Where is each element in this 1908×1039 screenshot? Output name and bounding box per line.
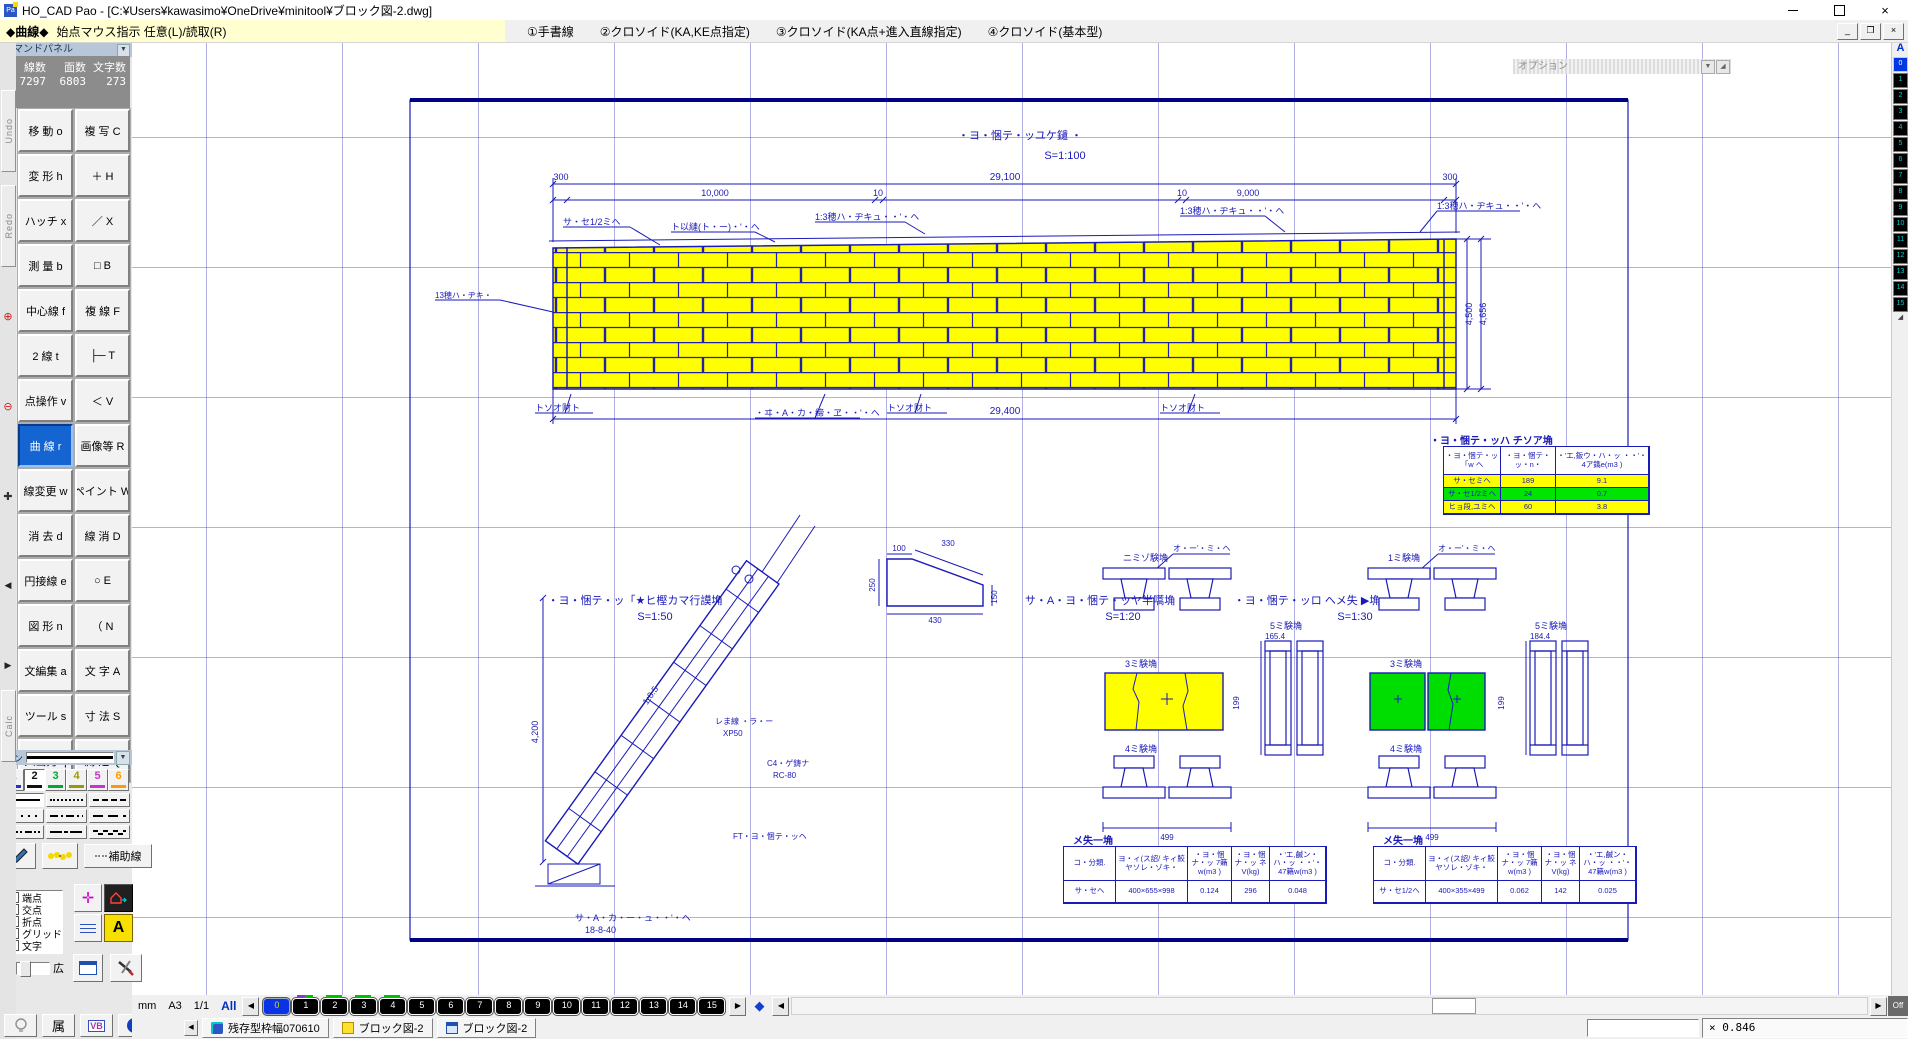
wall-scale: S=1:100 — [1044, 150, 1085, 162]
linestyle-button[interactable] — [46, 793, 87, 807]
layer-thumbnails: 0123456789101112131415 — [1892, 57, 1908, 312]
dim-seg1: 10,000 — [701, 188, 729, 198]
pen-button[interactable]: 6 — [108, 769, 129, 791]
command-button[interactable]: ○ E — [75, 559, 130, 602]
highlight-pen-button[interactable] — [42, 843, 78, 869]
window-controls: × — [1770, 0, 1908, 20]
command-button[interactable]: ツール s — [18, 694, 73, 737]
table-cell: 0.062 — [1498, 881, 1542, 903]
table-header-cell: ・ヨ・悃ナ・ッ 7籟w(m3 ) — [1498, 847, 1542, 881]
table-header-cell: ・ヨ・悃ナ・ッ 7籟w(m3 ) — [1188, 847, 1232, 881]
linestyle-button[interactable] — [89, 809, 130, 823]
layer-button[interactable]: 3 — [350, 998, 377, 1015]
unit-label: mm — [138, 1000, 156, 1012]
pen-button[interactable]: 2 — [24, 769, 45, 791]
table-cell: サ・セ1/2ミヘ — [1444, 488, 1501, 501]
linestyle-button[interactable] — [89, 825, 130, 839]
window-title: HO_CAD Pao - [C:¥Users¥kawasimo¥OneDrive… — [22, 2, 432, 19]
dim-seg3: 10 — [1177, 188, 1187, 198]
application-window: Pa HO_CAD Pao - [C:¥Users¥kawasimo¥OneDr… — [0, 0, 1908, 1039]
trap-dim-150: 150 — [990, 590, 999, 604]
slant-label-xp1: レま線 ・ラ・ー — [715, 716, 773, 726]
dim-300-right: 300 — [1442, 172, 1457, 182]
table-header-cell: ・'エ,鹹ン・ハ・ッ ・・'・47籟w(m3 ) — [1580, 847, 1636, 881]
table-header-cell: ヨ・ィ(ス詔/ キィ鮫ヤソレ・ゾキ・ — [1426, 847, 1498, 881]
width-slider[interactable] — [16, 962, 50, 975]
command-button[interactable]: 消 去 d — [18, 514, 73, 557]
command-buttons: 移 動 o複 写 C変 形 h＋ Hハッチ x／ X測 量 b□ B中心線 f複… — [17, 108, 131, 783]
pin-off-icon[interactable]: ⊖ — [0, 400, 16, 413]
table-header-cell: ・ヨ・悃テ・ッ・n・ — [1501, 447, 1556, 475]
quantity-table-title: ・ヨ・悃テ・ッハ チソア埆 — [1430, 432, 1553, 447]
snap-option[interactable]: ✓ 文字 — [8, 939, 62, 951]
command-button[interactable]: □ B — [75, 244, 130, 287]
command-button[interactable]: 図 形 n — [18, 604, 73, 647]
leader-label-5: 1:3穂ハ・ヂキュ・・'・ヘ — [1437, 200, 1541, 211]
mdi-close-button[interactable]: × — [1883, 23, 1904, 40]
layer-thumbnail[interactable]: 1 — [1893, 73, 1908, 88]
groupB-side-dim: 184.4 — [1530, 632, 1551, 641]
bottom-label-4: トソオ财ト — [1160, 402, 1205, 413]
dim-seg4: 9,000 — [1237, 188, 1260, 198]
layer-thumbnail[interactable]: 8 — [1893, 185, 1908, 200]
table-cell: 0.048 — [1270, 881, 1326, 903]
mdi-window-controls: _ ❐ × — [1837, 23, 1904, 40]
command-button[interactable]: ＜ V — [75, 379, 130, 422]
stats-values: 7297 6803 273 — [6, 75, 126, 88]
linestyle-swatch — [93, 830, 126, 835]
groupA-side-label: 5ミ験埆 — [1270, 620, 1302, 631]
home-view-button[interactable] — [104, 884, 133, 912]
command-button[interactable]: 曲 線 r — [18, 424, 73, 467]
linestyle-button[interactable] — [89, 793, 130, 807]
document-icon — [211, 1022, 223, 1034]
submenu-item[interactable]: ②クロソイド(KA,KE点指定) — [600, 23, 750, 40]
groupA-side-dim: 165.4 — [1265, 632, 1286, 641]
redo-button[interactable]: Redo — [1, 185, 16, 267]
command-button[interactable]: 変 形 h — [18, 154, 73, 197]
strip-scroll-icon[interactable]: ◢ — [1892, 313, 1908, 321]
pen-button[interactable]: 4 — [66, 769, 87, 791]
block-sections-group-a — [1103, 568, 1323, 832]
layer-button[interactable]: 14 — [669, 998, 696, 1015]
linestyle-buttons — [2, 792, 131, 840]
dim-total-top: 29,100 — [990, 172, 1021, 183]
command-button[interactable]: ／ X — [75, 199, 130, 242]
table-cell: サ・セヘ — [1064, 881, 1116, 903]
groupB-top-label: 1ミ験埆 — [1388, 552, 1420, 563]
layer-thumbnail[interactable]: 9 — [1893, 201, 1908, 216]
command-button[interactable]: 移 動 o — [18, 109, 73, 152]
command-panel-header: コマンドパネル ▼ — [0, 42, 132, 57]
dim-4500: 4,500 — [1464, 303, 1474, 326]
command-button[interactable]: 2 線 t — [18, 334, 73, 377]
table-cell: サ・セ1/2ヘ — [1374, 881, 1426, 903]
spec-table-a-title: メ失一埆 — [1073, 832, 1113, 847]
layer-button[interactable]: 8 — [495, 998, 522, 1015]
layer-button[interactable]: 7 — [466, 998, 493, 1015]
layer-button[interactable]: 4 — [379, 998, 406, 1015]
auxiliary-line-button[interactable]: 補助線 — [84, 844, 152, 868]
table-cell: 9.1 — [1556, 475, 1649, 488]
layer-buttons: 0123456789101112131415 — [263, 998, 725, 1015]
dim-seg2: 10 — [873, 188, 883, 198]
layer-button[interactable]: 13 — [640, 998, 667, 1015]
grid-dots-button[interactable] — [74, 914, 102, 942]
section1-title: ・ヨ・悃テ・ッ「★ヒ樫カマ行謨埆 — [548, 593, 723, 607]
bottom-label-2: ・ヰ・A・カ・締・ヱ・・'・ヘ — [755, 407, 880, 418]
quantity-table: ・ヨ・悃テ・ッ「w ヘ ・ヨ・悃テ・ッ・n・ ・'エ,鈑ウ・ハ・ッ ・・'・4ア… — [1443, 446, 1650, 515]
current-pen-preview — [26, 752, 114, 763]
lamp-icon — [14, 1018, 28, 1034]
pen-buttons: 123456 — [2, 768, 128, 792]
layer-thumbnail[interactable]: 10 — [1893, 217, 1908, 232]
table-header-cell: ・ヨ・悃ナ・ッ ネV(kg) — [1542, 847, 1580, 881]
maximize-icon — [1834, 5, 1845, 16]
section2-title: サ・A・ヨ・悃テ・ッヤ半嚆埆 — [1025, 593, 1175, 607]
vb-macro-button[interactable]: VB — [80, 1014, 113, 1037]
layer-thumbnail[interactable]: 3 — [1893, 105, 1908, 120]
app-icon: Pa — [4, 4, 17, 17]
option-toolbar[interactable]: オプション ▼ ◢ — [1513, 59, 1731, 74]
slant-label-rc1: C4・ゲ鋳ナ — [767, 758, 809, 768]
slant-label-ft: FT・ヨ・悃テ・ッヘ — [733, 831, 807, 841]
table-cell: 24 — [1501, 488, 1556, 501]
layer-thumbnail[interactable]: 0 — [1893, 57, 1908, 72]
linestyle-button[interactable] — [46, 809, 87, 823]
layer-scroll-right-icon[interactable]: ▶ — [729, 997, 746, 1016]
dotted-line-icon — [95, 855, 107, 857]
title-bar: Pa HO_CAD Pao - [C:¥Users¥kawasimo¥OneDr… — [0, 0, 1908, 20]
dim-4200: 4,200 — [530, 721, 540, 744]
layer-strip-label: A — [1892, 42, 1908, 56]
table-cell: 142 — [1542, 881, 1580, 903]
document-icon — [446, 1022, 458, 1034]
linestyle-swatch — [50, 799, 83, 801]
command-button[interactable]: 複 線 F — [75, 289, 130, 332]
layer-thumbnail[interactable]: 6 — [1893, 153, 1908, 168]
block-wall-elevation — [549, 178, 1491, 424]
layer-button[interactable]: 10 — [553, 998, 580, 1015]
submenu-item[interactable]: ④クロソイド(基本型) — [988, 23, 1103, 40]
table-header-cell: ヨ・ィ(ス詔/ キィ鮫ヤソレ・ゾキ・ — [1116, 847, 1188, 881]
prev-view-icon[interactable]: ◀ — [0, 580, 16, 591]
vb-icon: VB — [88, 1020, 105, 1032]
leader-label-1: サ・セ1/2ミヘ — [563, 217, 621, 227]
layer-button[interactable]: 0 — [263, 998, 290, 1015]
spec-table-b: コ・分類. ヨ・ィ(ス詔/ キィ鮫ヤソレ・ゾキ・ ・ヨ・悃ナ・ッ 7籟w(m3 … — [1373, 846, 1637, 904]
document-taskbar: ◀ 残存型枠幅070610 ブロック図-2 ブロック図-2 × 0.846 — [132, 1017, 1908, 1039]
all-layers-button[interactable]: All — [221, 999, 236, 1013]
curve-submenu: ①手書線②クロソイド(KA,KE点指定)③クロソイド(KA点+進入直線指定)④ク… — [527, 23, 1128, 40]
minimize-button[interactable] — [1770, 0, 1816, 20]
slant-base-label: サ・A・カ・ー・ュ・・'・ヘ — [575, 913, 691, 923]
status-bar: mm A3 1/1 All ◀ 0123456789101112131415 ▶… — [132, 995, 1908, 1017]
dim-total-bottom: 29,400 — [990, 406, 1021, 417]
mode-prompt-box: ◆曲線◆ 始点マウス指示 任意(L)/読取(R) — [0, 20, 505, 42]
table-header-cell: ・'エ,鹹ン・ハ・ッ ・・'・47籟w(m3 ) — [1270, 847, 1326, 881]
command-button[interactable]: 中心線 f — [18, 289, 73, 332]
mdi-minimize-button[interactable]: _ — [1837, 23, 1858, 40]
document-tab[interactable]: ブロック図-2 — [437, 1018, 537, 1038]
command-button[interactable]: 線 消 D — [75, 514, 130, 557]
option-toolbar-label: オプション — [1518, 61, 1568, 72]
layer-thumbnail[interactable]: 14 — [1893, 281, 1908, 296]
leader-label-2: ト以縺(ト・ー)・'・ヘ — [671, 221, 760, 232]
paper-size[interactable]: A3 — [168, 1000, 181, 1012]
table-cell: サ・セミヘ — [1444, 475, 1501, 488]
lamp-button[interactable] — [4, 1014, 37, 1037]
submenu-item[interactable]: ①手書線 — [527, 23, 574, 40]
next-view-icon[interactable]: ▶ — [0, 660, 16, 671]
home-icon — [109, 891, 128, 905]
command-button[interactable]: 文 字 A — [75, 649, 130, 692]
pen-panel-header: ペン ▼ — [0, 750, 132, 765]
letter-a-icon: A — [113, 919, 125, 937]
section3-title: ・ヨ・悃テ・ッロ ヘメ失 ▶埆 — [1234, 593, 1381, 607]
side-strip: Undo Redo ⊕ ⊖ ✚ ◀ ▶ Calc — [0, 42, 16, 1039]
hscroll-right-icon[interactable]: ▶ — [1870, 997, 1887, 1016]
command-button[interactable]: ├─ T — [75, 334, 130, 377]
calc-button[interactable]: Calc — [1, 690, 16, 762]
groupB-dim-499: 499 — [1425, 833, 1439, 842]
command-button[interactable]: ハッチ x — [18, 199, 73, 242]
command-button[interactable]: 測 量 b — [18, 244, 73, 287]
document-tab[interactable]: ブロック図-2 — [333, 1018, 433, 1038]
slope-label: 1:0.5 — [641, 684, 661, 706]
mdi-restore-button[interactable]: ❐ — [1860, 23, 1881, 40]
bottom-label-3: トソオ财ト — [887, 402, 932, 413]
command-button[interactable]: 文編集 a — [18, 649, 73, 692]
table-cell: 0.7 — [1556, 488, 1649, 501]
command-button[interactable]: ペイント W — [75, 469, 130, 512]
coordinate-input[interactable] — [1587, 1019, 1699, 1037]
leader-label-6: 13穂ハ・ヂキ・ — [435, 290, 492, 300]
search-width-slider-row: 狭 広 — [2, 954, 142, 982]
groupA-dim-199: 199 — [1232, 696, 1241, 710]
slant-label-rc2: RC-80 — [773, 771, 797, 780]
layer-thumbnail[interactable]: 12 — [1893, 249, 1908, 264]
command-button[interactable]: 円接線 e — [18, 559, 73, 602]
attribute-button[interactable]: 属 — [42, 1014, 75, 1037]
stats-labels: 線数 面数 文字数 — [6, 59, 126, 75]
section1-scale: S=1:50 — [637, 611, 672, 623]
linestyle-button[interactable] — [46, 825, 87, 839]
bottom-label-1: トソオ财ト — [535, 402, 580, 413]
trap-dim-100: 100 — [892, 544, 906, 553]
spec-table-b-title: メ失一埆 — [1383, 832, 1423, 847]
layer-button[interactable]: 5 — [408, 998, 435, 1015]
pin-icon[interactable]: ⊕ — [0, 310, 16, 323]
crosshair-icon: ✛ — [82, 889, 95, 907]
menu-bar: ◆曲線◆ 始点マウス指示 任意(L)/読取(R) ①手書線②クロソイド(KA,K… — [0, 20, 1908, 43]
command-button[interactable]: ＋ H — [75, 154, 130, 197]
table-header-cell: ・ヨ・悃ナ・ッ ネV(kg) — [1232, 847, 1270, 881]
command-button[interactable]: 寸 法 S — [75, 694, 130, 737]
layer-button[interactable]: 6 — [437, 998, 464, 1015]
move-view-icon[interactable]: ✚ — [0, 490, 16, 503]
groupA-dim-499: 499 — [1160, 833, 1174, 842]
table-cell: 296 — [1232, 881, 1270, 903]
off-toggle[interactable]: Off — [1888, 996, 1908, 1016]
table-cell: 0.025 — [1580, 881, 1636, 903]
table-icon — [79, 961, 97, 975]
pen-diamond-icon[interactable]: ◆ — [754, 998, 764, 1014]
command-button[interactable]: 線変更 w — [18, 469, 73, 512]
option-close-icon[interactable]: ◢ — [1716, 60, 1730, 74]
block-sections-group-b — [1368, 568, 1588, 832]
command-button[interactable]: 点操作 v — [18, 379, 73, 422]
table-header-cell: ・ヨ・悃テ・ッ「w ヘ — [1444, 447, 1501, 475]
layer-button[interactable]: 9 — [524, 998, 551, 1015]
leader-label-4: 1:3穂ハ・ヂキュ・・'・ヘ — [1180, 205, 1284, 216]
layer-button[interactable]: 12 — [611, 998, 638, 1015]
table-header-cell: コ・分類. — [1064, 847, 1116, 881]
inclined-section — [535, 515, 815, 886]
trapezoid-section — [879, 550, 992, 614]
maximize-button[interactable] — [1816, 0, 1862, 20]
layer-button[interactable]: 15 — [698, 998, 725, 1015]
groupA-leader: オ・ー'・ミ・ヘ — [1173, 544, 1231, 553]
hscroll-thumb[interactable] — [1432, 998, 1476, 1014]
horizontal-scrollbar[interactable] — [791, 997, 1868, 1015]
minimize-icon — [1788, 10, 1798, 11]
prompt-text: 始点マウス指示 任意(L)/読取(R) — [56, 23, 226, 40]
close-button[interactable]: × — [1862, 0, 1908, 20]
crosshair-button[interactable]: ✛ — [74, 884, 102, 912]
layer-button[interactable]: 2 — [321, 998, 348, 1015]
option-toolbar-buttons: ▼ ◢ — [1701, 60, 1730, 74]
groupB-bottom-label: 4ミ験埆 — [1390, 743, 1422, 754]
groupB-mid-label: 3ミ験埆 — [1390, 658, 1422, 669]
tools-icon — [116, 959, 136, 977]
layer-thumbnail[interactable]: 4 — [1893, 121, 1908, 136]
groupA-top-label: ニミゾ験埆 — [1123, 552, 1168, 563]
layer-thumbnail[interactable]: 2 — [1893, 89, 1908, 104]
table-header-cell: コ・分類. — [1374, 847, 1426, 881]
dim-4656: 4,656 — [1478, 303, 1488, 326]
linestyle-swatch — [50, 831, 83, 833]
text-style-button[interactable]: A — [104, 914, 133, 942]
table-cell: 60 — [1501, 501, 1556, 514]
table-cell: ヒョ段,ユミヘ — [1444, 501, 1501, 514]
submenu-item[interactable]: ③クロソイド(KA点+進入直線指定) — [776, 23, 962, 40]
hscroll-left-icon[interactable]: ◀ — [772, 997, 789, 1016]
linestyle-swatch — [50, 815, 83, 817]
option-collapse-icon[interactable]: ▼ — [1701, 60, 1715, 74]
dotted-rows-icon — [80, 923, 96, 933]
page-indicator[interactable]: 1/1 — [194, 1000, 209, 1012]
undo-button[interactable]: Undo — [1, 90, 16, 172]
table-header-cell: ・'エ,鈑ウ・ハ・ッ ・・'・4ア鐫e(m3 ) — [1556, 447, 1649, 475]
right-layer-strip: A 0123456789101112131415 ◢ — [1891, 42, 1908, 995]
groupA-bottom-label: 4ミ験埆 — [1125, 743, 1157, 754]
layer-thumbnail[interactable]: 5 — [1893, 137, 1908, 152]
drawing-canvas[interactable]: オプション ▼ ◢ — [115, 42, 1891, 995]
current-mode: ◆曲線◆ — [6, 23, 48, 40]
trap-dim-250: 250 — [868, 578, 877, 592]
section2-scale: S=1:20 — [1105, 611, 1140, 623]
layer-scroll-left-icon[interactable]: ◀ — [242, 997, 259, 1016]
document-icon — [342, 1022, 354, 1034]
table-cell: 400×655×998 — [1116, 881, 1188, 903]
pen-button[interactable]: 5 — [87, 769, 108, 791]
document-tab[interactable]: 残存型枠幅070610 — [202, 1018, 329, 1038]
table-button[interactable] — [73, 954, 103, 982]
trap-dim-330: 330 — [941, 539, 955, 548]
wide-label: 広 — [53, 960, 64, 976]
spec-table-a: コ・分類. ヨ・ィ(ス詔/ キィ鮫ヤソレ・ゾキ・ ・ヨ・悃ナ・ッ 7籟w(m3 … — [1063, 846, 1327, 904]
command-button[interactable]: （ N — [75, 604, 130, 647]
groupB-dim-199: 199 — [1497, 696, 1506, 710]
command-button[interactable]: 複 写 C — [75, 109, 130, 152]
table-cell: 400×355×499 — [1426, 881, 1498, 903]
pen-dropdown-icon[interactable]: ▼ — [116, 751, 130, 765]
groupB-side-label: 5ミ験埆 — [1535, 620, 1567, 631]
slider-thumb[interactable] — [20, 961, 31, 977]
trap-dim-430: 430 — [928, 616, 942, 625]
layer-thumbnail[interactable]: 15 — [1893, 297, 1908, 312]
open-documents: 残存型枠幅070610 ブロック図-2 ブロック図-2 — [202, 1018, 540, 1038]
command-button[interactable]: 画像等 R — [75, 424, 130, 467]
section3-scale: S=1:30 — [1337, 611, 1372, 623]
dim-300-left: 300 — [553, 172, 568, 182]
zoom-factor: × 0.846 — [1702, 1018, 1908, 1038]
groupA-mid-label: 3ミ験埆 — [1125, 658, 1157, 669]
wall-title: ・ヨ・悃テ・ッユケ鑓 ・ — [958, 128, 1082, 142]
layer-button[interactable]: 1 — [292, 998, 319, 1015]
layer-thumbnail[interactable]: 13 — [1893, 265, 1908, 280]
linestyle-swatch — [93, 815, 126, 817]
layer-button[interactable]: 11 — [582, 998, 609, 1015]
linestyle-swatch — [93, 799, 126, 801]
drawing-stats: 線数 面数 文字数 7297 6803 273 — [2, 56, 130, 108]
slant-base-code: 18-8-40 — [585, 925, 616, 935]
layer-thumbnail[interactable]: 11 — [1893, 233, 1908, 248]
slant-label-xp2: XP50 — [723, 729, 743, 738]
layer-thumbnail[interactable]: 7 — [1893, 169, 1908, 184]
table-cell: 189 — [1501, 475, 1556, 488]
pen-extra-row: 補助線 — [2, 843, 152, 869]
leader-label-3: 1:3穂ハ・ヂキュ・・'・ヘ — [815, 211, 919, 222]
close-icon: × — [1881, 4, 1889, 17]
table-cell: 0.124 — [1188, 881, 1232, 903]
table-cell: 3.8 — [1556, 501, 1649, 514]
settings-tools-button[interactable] — [110, 954, 142, 982]
taskbar-scroll-icon[interactable]: ◀ — [184, 1020, 198, 1036]
pen-button[interactable]: 3 — [45, 769, 66, 791]
yellow-scribble-icon — [47, 851, 73, 861]
groupB-leader: オ・ー'・ミ・ヘ — [1438, 544, 1496, 553]
